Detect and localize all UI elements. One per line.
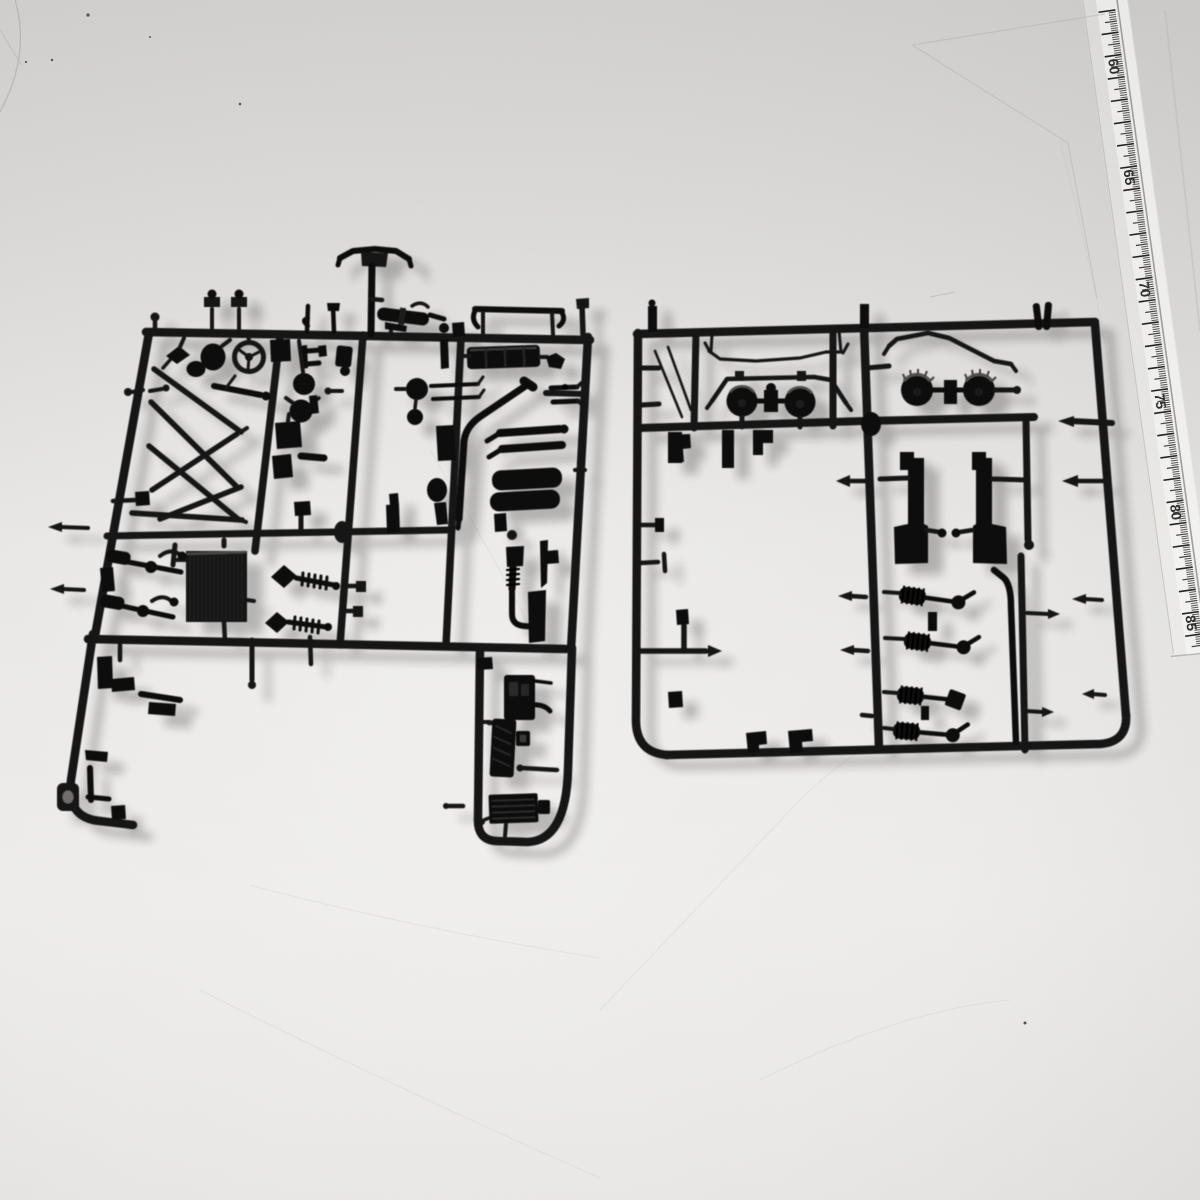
svg-text:70: 70 <box>1136 280 1154 298</box>
svg-text:80: 80 <box>1167 503 1185 521</box>
svg-text:65: 65 <box>1121 169 1139 187</box>
svg-text:75: 75 <box>1152 392 1170 410</box>
svg-text:85: 85 <box>1182 614 1200 632</box>
svg-text:60: 60 <box>1105 58 1123 76</box>
